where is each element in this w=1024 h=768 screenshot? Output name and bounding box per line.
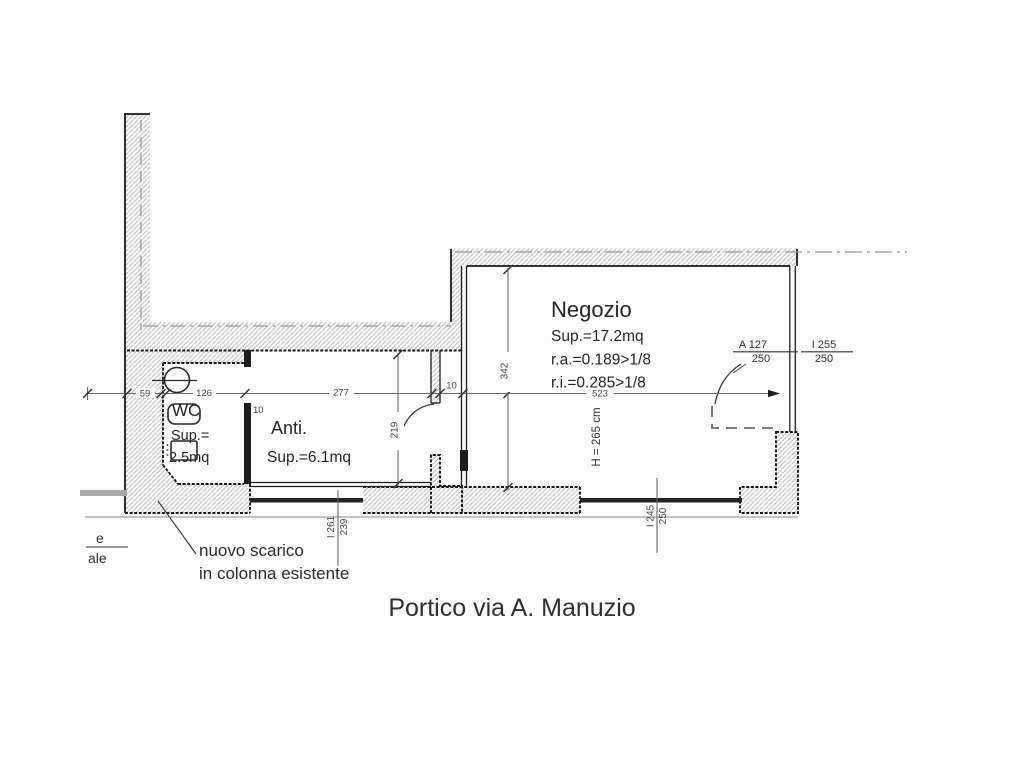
door-a-height-label: 250 (752, 353, 770, 365)
dim-label-523: 523 (592, 389, 608, 400)
note-line2: in colonna esistente (199, 564, 349, 583)
bidet-dot (167, 454, 169, 456)
threshold-negozio (580, 498, 742, 503)
dim-label-277: 277 (333, 388, 349, 399)
floor-plan-drawing: Negozio Sup.=17.2mq r.a.=0.189>1/8 r.i.=… (0, 0, 1024, 768)
dim-label-126: 126 (196, 388, 212, 399)
wall-negozio-left-jamb-block (460, 450, 468, 471)
dim-label-bottom-bottom: 250 (658, 507, 669, 524)
door-a-width-label: A 127 (739, 339, 767, 351)
portico-floor-left (80, 490, 127, 496)
wc-sup-value: 2.5mq (169, 450, 209, 466)
annotations: nuovo scarico in colonna esistente e ale… (86, 501, 636, 622)
door-i-width-label: I 255 (812, 339, 836, 351)
wall-bottom-band (363, 487, 580, 513)
height-label: H = 265 cm (591, 407, 603, 466)
plan-caption: Portico via A. Manuzio (388, 594, 635, 622)
negozio-sup: Sup.=17.2mq (551, 328, 644, 345)
dim-label-bottom-top: I 245 (646, 504, 657, 527)
dim-arrow-right (768, 390, 780, 397)
negozio-title: Negozio (551, 297, 632, 322)
wall-corner-block (125, 463, 250, 513)
negozio-ra: r.a.=0.189>1/8 (551, 352, 651, 369)
axis-lines (141, 120, 907, 330)
wall-wc-east-stub (244, 350, 251, 367)
edge-fragment-bottom: ale (88, 550, 107, 566)
dim-label-342: 342 (500, 362, 511, 379)
dim-label-left-top: I 261 (326, 515, 337, 538)
door-leaf-dashed (712, 406, 776, 428)
wall-negozio-top (451, 248, 798, 266)
dim-label-left-bottom: 239 (339, 518, 350, 535)
wall-left-strip-lower (125, 348, 163, 464)
dim-label-10-door: 10 (446, 381, 457, 392)
dim-label-10-wc: 10 (253, 405, 264, 416)
anti-sup: Sup.=6.1mq (267, 449, 351, 466)
wall-wc-east-lower (244, 403, 251, 484)
bidet-dot (167, 449, 169, 451)
edge-fragment-top: e (96, 530, 104, 546)
bidet-dot (167, 444, 169, 446)
anti-title: Anti. (271, 418, 307, 438)
note-line1: nuovo scarico (199, 541, 304, 560)
wall-left-strip-upper (125, 113, 150, 350)
door-i-height-label: 250 (815, 353, 833, 365)
dim-label-219: 219 (390, 421, 401, 438)
wall-pillar-bottom-right (740, 432, 798, 513)
threshold-anti (250, 498, 363, 503)
floor-plan-page: Negozio Sup.=17.2mq r.a.=0.189>1/8 r.i.=… (0, 0, 1024, 768)
dim-label-59: 59 (140, 389, 151, 400)
